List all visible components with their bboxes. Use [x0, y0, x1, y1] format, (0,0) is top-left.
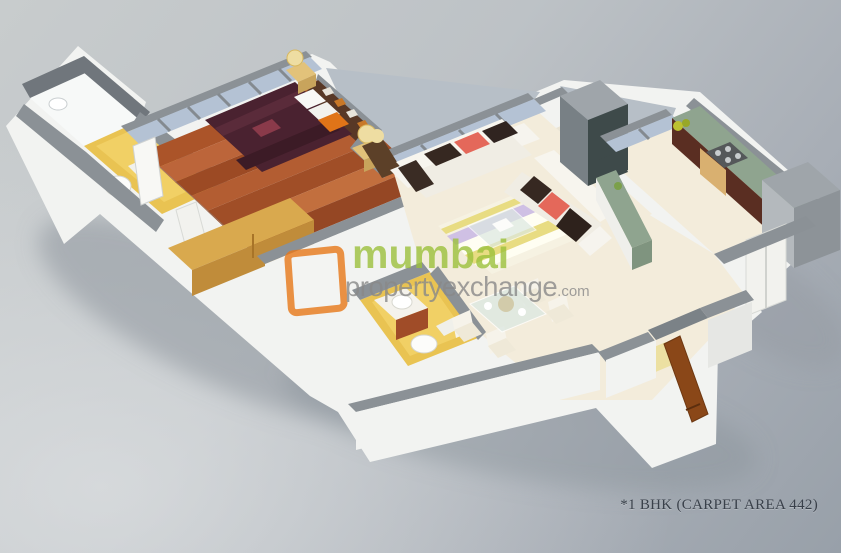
table-lamp-icon	[287, 50, 303, 66]
table-vase	[498, 296, 514, 312]
floor-plan-render: mumbai propertyexchange.com *1 BHK (CARP…	[0, 0, 841, 553]
bathroom2-toilet	[411, 335, 437, 353]
floorplan-scene	[0, 0, 841, 553]
counter-plant	[614, 182, 622, 190]
bathroom1-sink	[49, 98, 67, 110]
vanity-basin	[392, 295, 412, 309]
caption-text: *1 BHK (CARPET AREA 442)	[618, 497, 818, 514]
table-lamp-icon	[370, 129, 384, 143]
